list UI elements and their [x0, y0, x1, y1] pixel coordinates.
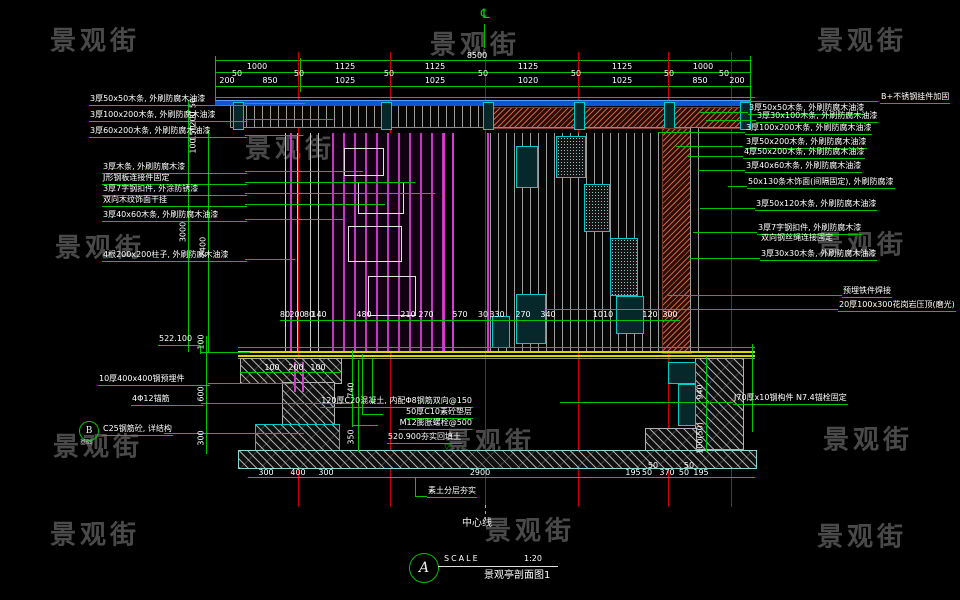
- watermark: 景观街: [823, 427, 913, 456]
- annotation-left: 4Φ12锚筋: [131, 395, 203, 406]
- dim-label: 370: [659, 469, 674, 478]
- annotation-left: 3厚100x200木条, 外刷防腐木油漆: [89, 111, 247, 122]
- height-dim-line: [752, 344, 753, 432]
- annotation-right: 50x130条木饰面(间隔固定), 外刷防腐漆: [747, 178, 895, 189]
- leader: [676, 146, 743, 147]
- footing-right-step: [668, 362, 696, 384]
- dim-label: 140: [311, 311, 326, 320]
- height-dim-line: [706, 356, 707, 452]
- dim-label: 50: [232, 70, 242, 79]
- dim-label: 1125: [425, 63, 445, 72]
- annotation-right: 20厚100x300花岗岩压顶(磨光): [838, 301, 956, 312]
- detail-bubble-a: A: [409, 553, 439, 583]
- leader: [706, 120, 756, 121]
- annotation-left: 3厚40x60木条, 外刷防腐木油漆: [102, 211, 247, 222]
- watermark: 景观街: [817, 524, 907, 553]
- watermark: 景观街: [817, 28, 907, 57]
- footing-right-step: [678, 384, 696, 426]
- centerline-label: 中心线: [462, 518, 492, 529]
- dim-label: 50: [478, 70, 488, 79]
- dim-label: 100: [310, 364, 325, 373]
- watermark: 景观街: [53, 434, 143, 463]
- leader: [245, 259, 295, 260]
- leader: [362, 414, 383, 415]
- dim-label: 1020: [518, 77, 538, 86]
- leader: [700, 112, 748, 113]
- ground-slab: [238, 450, 757, 469]
- stone-block-speckled: [610, 238, 638, 296]
- column-side-slats: [690, 128, 700, 352]
- annotation-right: 3厚50x120木条, 外刷防腐木油漆: [755, 200, 877, 211]
- annotation-right: 3厚40x60木条, 外刷防腐木油漆: [745, 162, 862, 173]
- leader: [693, 232, 757, 233]
- annotation-right: B+不锈钢挂件加固: [880, 93, 950, 104]
- dim-label: 2900: [470, 469, 490, 478]
- annotation-left: 双向木纹饰面干挂: [102, 196, 247, 207]
- dim-label: 1025: [335, 77, 355, 86]
- dim-label: 200: [729, 77, 744, 86]
- annotation-bottom: 520.900夯实回填土: [387, 433, 462, 444]
- deck-board-yellow: [238, 351, 755, 353]
- watermark: 景观街: [485, 518, 575, 547]
- dim-label: 50: [384, 70, 394, 79]
- dim-label: 200: [289, 311, 304, 320]
- callout-b-text: C25钢筋砼, 详结构: [102, 425, 173, 436]
- roof-joist-band: [230, 106, 487, 127]
- dim-line-row3: [215, 86, 750, 87]
- leader: [164, 433, 304, 434]
- dim-label: 1125: [612, 63, 632, 72]
- stone-block: [516, 146, 538, 188]
- dim-label: 3000: [180, 222, 189, 242]
- dim-label: 1010: [593, 311, 613, 320]
- dim-label: 100: [264, 364, 279, 373]
- leader: [200, 352, 250, 353]
- dim-label: 340: [540, 311, 555, 320]
- dim-label: 350: [348, 429, 357, 444]
- footing-left-base: [255, 424, 340, 452]
- callout-b-bubble: B: [79, 421, 99, 441]
- dim-label: 940: [697, 384, 706, 399]
- watermark: 景观街: [50, 522, 140, 551]
- leader: [740, 101, 878, 102]
- title-underline: [438, 566, 558, 567]
- dim-label: 300: [662, 311, 677, 320]
- dim-label: 1125: [518, 63, 538, 72]
- leader: [245, 219, 345, 220]
- dim-label: 195: [693, 469, 708, 478]
- dim-label: 480: [356, 311, 371, 320]
- leader: [245, 119, 333, 120]
- leader: [690, 258, 760, 259]
- annotation-right: 3厚30x100木条, 外刷防腐木油漆: [756, 112, 878, 123]
- roof-hatch-band: [487, 107, 752, 129]
- annotation-left: 3厚60x200木条, 外刷防腐木油漆: [89, 127, 247, 138]
- annotation-right: 3厚100x200木条, 外刷防腐木油漆: [745, 124, 872, 135]
- stone-block-speckled: [556, 136, 586, 178]
- dim-label: 400: [290, 469, 305, 478]
- leader: [245, 135, 303, 136]
- dim-label: 300: [198, 430, 207, 445]
- leader: [668, 295, 842, 296]
- annotation-left: 522.100: [158, 335, 200, 346]
- roof-clip: [664, 102, 675, 130]
- annotation-right: 3厚30x30木条, 外刷防腐木油漆: [760, 250, 877, 261]
- stone-block-speckled: [584, 184, 610, 232]
- leader: [245, 171, 363, 172]
- footing-right-base: [645, 428, 697, 452]
- annotation-right: 预埋铁件焊接: [842, 287, 892, 298]
- leader: [688, 156, 743, 157]
- screen-step-detail: [358, 182, 404, 214]
- dim-label: 8500: [467, 52, 487, 61]
- annotation-right: 双向钢丝绳连接固定: [760, 234, 834, 244]
- dim-label: 120: [642, 311, 657, 320]
- dim-label: 850: [692, 77, 707, 86]
- dim-label: 300: [318, 469, 333, 478]
- mid-dim-line: [280, 320, 680, 321]
- roof-clip: [574, 102, 585, 130]
- leader: [415, 496, 427, 497]
- dim-label: 195: [625, 469, 640, 478]
- dim-label: 50: [648, 462, 658, 471]
- annotation-bottom: M12膨胀螺栓@500: [399, 419, 473, 430]
- dim-label: 270: [418, 311, 433, 320]
- leader: [700, 208, 755, 209]
- dim-label: 100(50): [697, 422, 706, 454]
- callout-b-subtext: 基础: [80, 440, 92, 447]
- roof-clip: [381, 102, 392, 130]
- annotation-right: 4厚50x200木条, 外刷防腐木油漆: [743, 148, 865, 159]
- annotation-right: J70厚x10钢构件 N7.4锚栓固定: [733, 394, 848, 405]
- drawing-title: 景观亭剖面图1: [484, 570, 550, 581]
- leader: [658, 132, 745, 133]
- dim-label: 300: [258, 469, 273, 478]
- leader: [245, 204, 385, 205]
- annotation-right: 素土分层夯实: [427, 487, 477, 498]
- dim-label: 50: [684, 462, 694, 471]
- roof-clip: [483, 102, 494, 130]
- dim-label: 1125: [335, 63, 355, 72]
- dim-label: 50: [664, 70, 674, 79]
- centerline-symbol-stem: [484, 24, 485, 48]
- deck-board-yellow: [238, 355, 755, 357]
- dim-label: 50: [294, 70, 304, 79]
- leader: [560, 402, 733, 403]
- dim-label: 330: [489, 311, 504, 320]
- dim-label: 1025: [425, 77, 445, 86]
- dim-label: 200: [288, 364, 303, 373]
- scale-label: SCALE: [444, 555, 480, 564]
- leader: [698, 170, 745, 171]
- annotation-left: 3厚50x50木条, 外刷防腐木油漆: [89, 95, 247, 106]
- leader: [245, 103, 305, 104]
- annotation-left: 10厚400x400钢预埋件: [98, 375, 210, 386]
- dim-label: 210: [400, 311, 415, 320]
- dim-label: 1000: [693, 63, 713, 72]
- roof-top-chord: [215, 97, 755, 98]
- dim-label: 1025: [612, 77, 632, 86]
- dim-label: 570: [452, 311, 467, 320]
- dim-label: 100: [190, 138, 199, 153]
- screen-step-detail: [348, 226, 402, 262]
- dim-label: 30: [478, 311, 488, 320]
- centerline-symbol: ℄: [481, 8, 489, 22]
- leader: [208, 383, 292, 384]
- leader: [352, 425, 378, 426]
- cad-canvas: 景观街景观街景观街景观街景观街景观街景观街景观街景观街景观街景观街景观街: [0, 0, 960, 600]
- leader: [415, 478, 416, 497]
- dim-label: 270: [515, 311, 530, 320]
- dim-label: ▽: [444, 444, 449, 452]
- dim-label: 1000: [247, 63, 267, 72]
- dim-label: 50: [719, 70, 729, 79]
- leader: [245, 182, 415, 183]
- leader: [245, 193, 435, 194]
- annotation-left: 4根200x200柱子, 外刷防腐木油漆: [102, 251, 247, 262]
- dim-tick: [750, 56, 751, 102]
- leader: [545, 309, 838, 310]
- dim-label: 850: [262, 77, 277, 86]
- watermark: 景观街: [50, 28, 140, 57]
- stone-block: [616, 296, 644, 334]
- leader: [728, 186, 747, 187]
- deck-top-line: [238, 347, 755, 348]
- scale-value: 1:20: [524, 555, 542, 564]
- dim-label: 50: [571, 70, 581, 79]
